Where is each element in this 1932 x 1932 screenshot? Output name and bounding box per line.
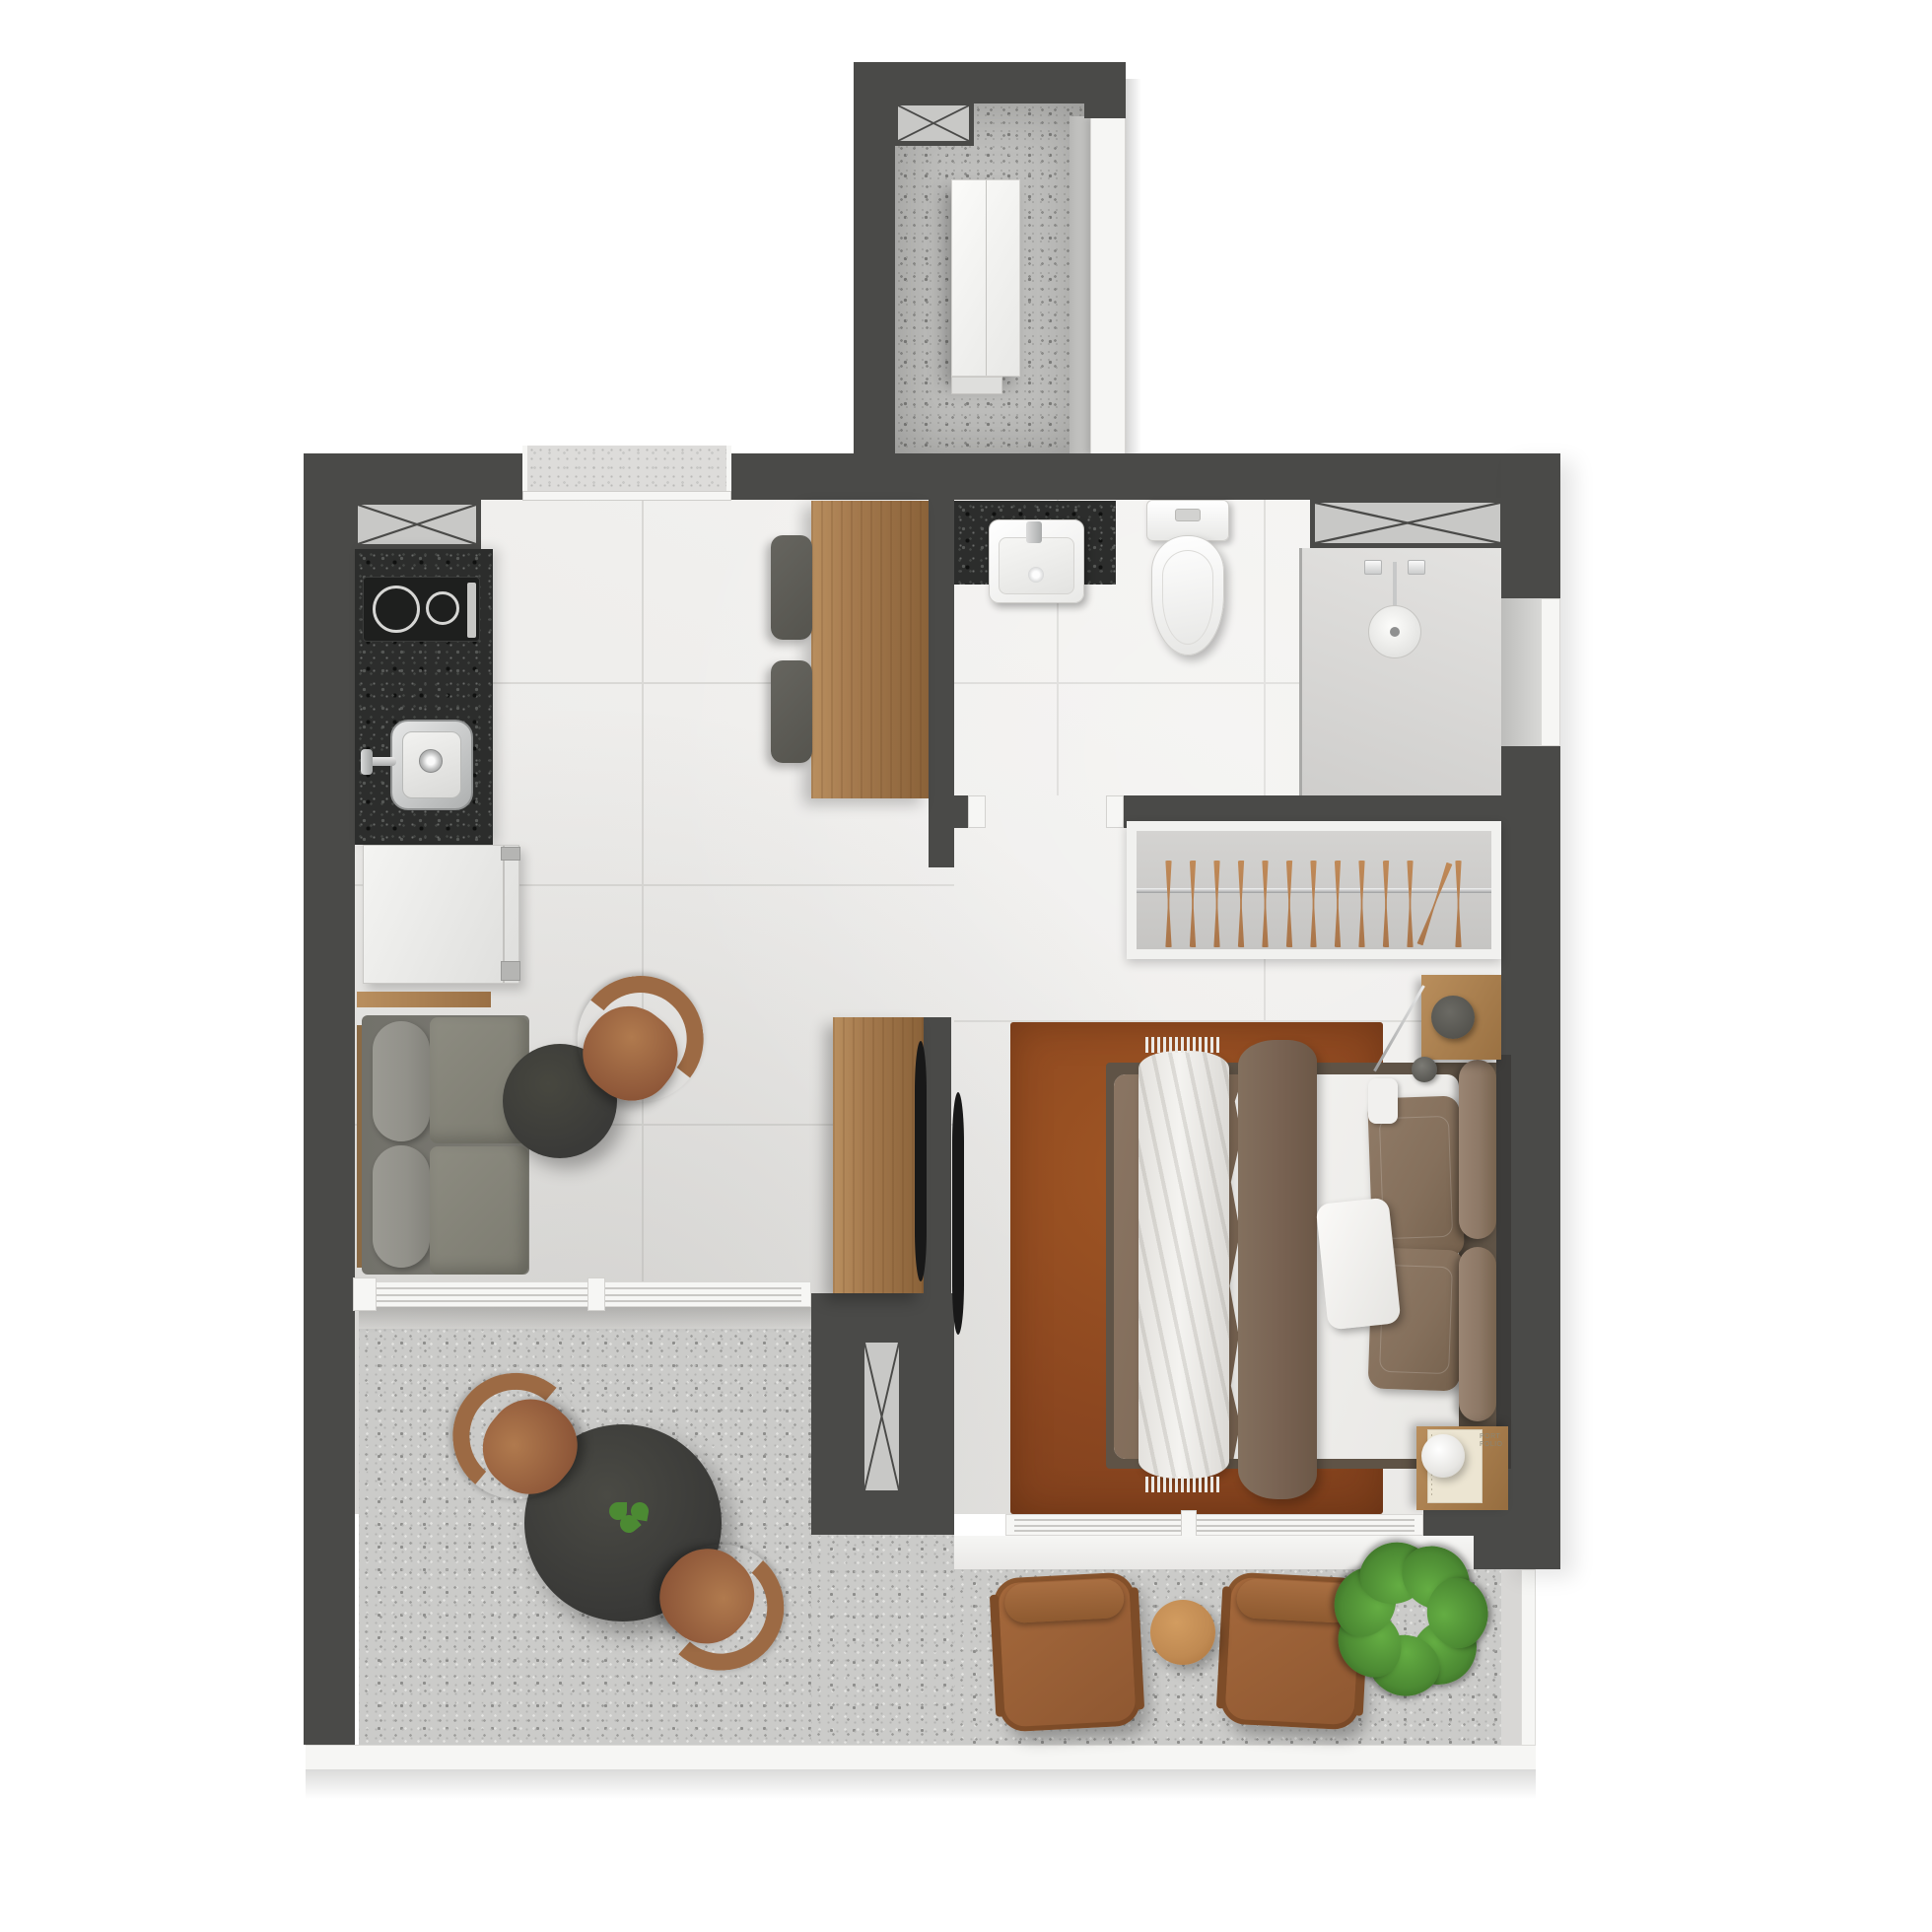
sofa-seat-cushion xyxy=(430,1146,528,1275)
clothes-hanger xyxy=(1334,861,1343,947)
tv-living-room xyxy=(915,1041,927,1281)
wardrobe-hangers xyxy=(1137,888,1491,893)
shower-arm xyxy=(1393,562,1397,609)
sofa-back-cushion xyxy=(373,1145,430,1268)
table-plant xyxy=(603,1498,647,1542)
notepad-text-line2: FOLIO xyxy=(1480,1441,1503,1449)
clothes-hanger xyxy=(1357,861,1366,947)
clothes-hanger xyxy=(1285,861,1294,947)
throw-fringe xyxy=(1145,1477,1222,1492)
bathroom-sink-basin xyxy=(999,537,1074,594)
bathroom-door-jamb-left xyxy=(968,795,986,828)
fridge-hinge-top xyxy=(501,847,520,861)
door-shadow xyxy=(359,1307,811,1333)
floor-plan: PORT FOLIO xyxy=(0,0,1932,1932)
tv-cabinet xyxy=(833,1017,924,1293)
clothes-hanger xyxy=(1309,861,1318,947)
wall-left xyxy=(304,453,355,1745)
entry-door-shadow xyxy=(1126,79,1141,455)
bathroom-door-jamb-right xyxy=(1106,795,1124,828)
lamp-head xyxy=(1412,1057,1437,1082)
headboard-cushion xyxy=(1459,1247,1496,1421)
shower-window-frame xyxy=(1541,598,1560,746)
clothes-hanger xyxy=(1406,861,1414,947)
kitchen-console-shelf xyxy=(357,992,491,1007)
shower-control xyxy=(1408,560,1425,575)
shaft-marker-kitchen xyxy=(353,500,481,549)
clothes-hanger xyxy=(1261,861,1270,947)
shaft-marker-shower xyxy=(1310,498,1505,548)
grout-line xyxy=(642,500,644,1281)
refrigerator xyxy=(363,845,519,984)
clothes-hanger xyxy=(1164,861,1173,947)
bathroom-faucet xyxy=(1026,521,1042,543)
tv-bedroom xyxy=(952,1092,964,1335)
headboard-frame xyxy=(1496,1055,1511,1469)
balcony-slab-shadow xyxy=(306,1769,1536,1799)
throw-fringe xyxy=(1145,1037,1222,1053)
clothes-hanger xyxy=(1212,861,1221,947)
hall-wall-right xyxy=(1084,62,1126,118)
shaft-marker-hall xyxy=(893,101,974,146)
balcony-coffee-table xyxy=(1150,1600,1215,1665)
balcony-right-edge xyxy=(1521,1569,1536,1764)
toilet-bowl xyxy=(1151,535,1224,655)
open-wardrobe xyxy=(1127,821,1501,959)
cooktop-control-strip xyxy=(467,583,476,638)
clothes-hanger xyxy=(1189,861,1198,947)
headboard-cushion xyxy=(1459,1060,1496,1239)
sliding-door-bedroom xyxy=(1005,1514,1423,1536)
grout-line xyxy=(1264,959,1266,1022)
entry-door xyxy=(1090,116,1126,455)
stool xyxy=(771,660,812,763)
wall-tv-partition xyxy=(924,1017,951,1293)
shower-glass-partition xyxy=(1299,548,1302,795)
shower-window-recess xyxy=(1501,598,1541,746)
armchair-bolster xyxy=(1004,1578,1125,1623)
nightstand-lamp-base xyxy=(1431,996,1475,1039)
kitchen-window-sill xyxy=(522,491,731,501)
shower-head-center xyxy=(1390,627,1400,637)
desk-table xyxy=(811,501,929,798)
entry-cabinet xyxy=(951,179,1020,377)
shaft-marker-center-block xyxy=(860,1338,904,1495)
potted-plant xyxy=(1371,1579,1501,1709)
shower-floor xyxy=(1301,548,1501,795)
cooktop-burner-small xyxy=(426,591,459,625)
toilet-flush-button xyxy=(1175,509,1201,521)
bed-white-throw xyxy=(1138,1051,1229,1479)
bed-runner-blanket xyxy=(1238,1040,1317,1499)
balcony-right-sill xyxy=(1501,1569,1521,1745)
clothes-hanger xyxy=(1415,862,1454,946)
cooktop-burner-large xyxy=(373,586,420,633)
lounge-armchair xyxy=(993,1571,1141,1732)
bed-white-pillow xyxy=(1316,1197,1402,1330)
entry-cabinet-base xyxy=(951,377,1002,394)
bathroom-sink-drain xyxy=(1028,567,1044,583)
shower-control xyxy=(1364,560,1382,575)
fridge-hinge-bottom xyxy=(501,961,520,981)
sliding-door-handle xyxy=(587,1277,605,1311)
clothes-hanger xyxy=(1454,861,1463,947)
hall-wall-left xyxy=(854,62,895,455)
wall-bathroom-bottom-left xyxy=(929,795,968,828)
bed-small-pillow xyxy=(1368,1078,1398,1124)
kitchen-window-ledge xyxy=(522,446,731,491)
stool xyxy=(771,535,812,640)
balcony-floor-center xyxy=(811,1535,954,1745)
clothes-hanger xyxy=(1382,861,1391,947)
kitchen-faucet-handle xyxy=(361,749,373,775)
balcony-slab-edge xyxy=(306,1745,1536,1769)
sphere-table-lamp xyxy=(1421,1434,1465,1478)
grout-line xyxy=(1264,500,1266,795)
sofa-back-cushion xyxy=(373,1021,430,1141)
kitchen-sink-drain xyxy=(419,749,443,773)
clothes-hanger xyxy=(1237,861,1246,947)
entry-door-frame xyxy=(1069,116,1092,455)
wall-top-right xyxy=(731,453,1501,500)
wall-top-left xyxy=(304,453,522,500)
notepad-text-line1: PORT xyxy=(1480,1433,1500,1441)
sliding-door-cap xyxy=(353,1277,377,1311)
